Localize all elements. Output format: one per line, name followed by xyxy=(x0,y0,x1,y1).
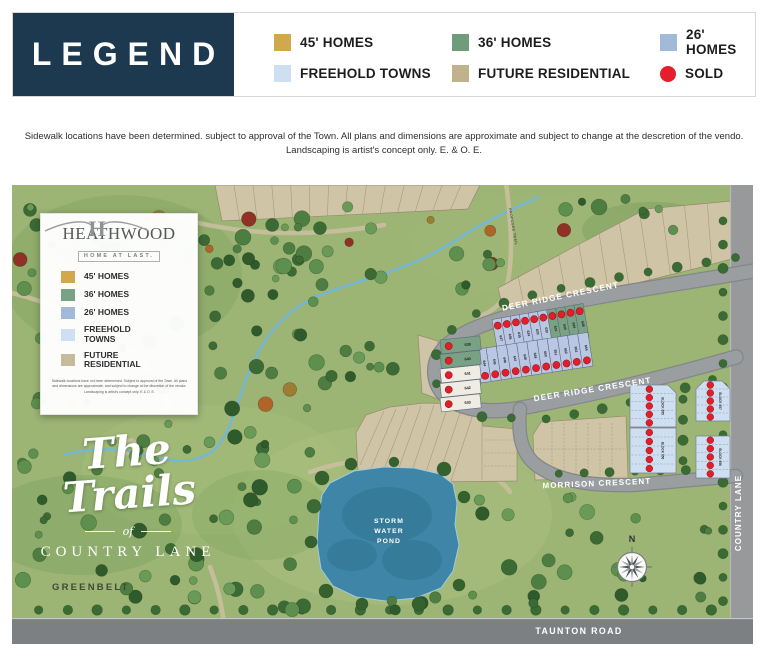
tree xyxy=(17,281,31,295)
tree xyxy=(15,572,30,587)
tree xyxy=(365,341,375,351)
tree xyxy=(34,606,43,615)
tree xyxy=(555,470,562,477)
lot-number: 649 xyxy=(533,352,538,358)
sold-dot xyxy=(707,470,714,477)
pond-label-line2: WATER xyxy=(374,528,404,535)
tree xyxy=(718,525,727,534)
card-legend-item: 26' HOMES xyxy=(61,307,189,319)
tree xyxy=(205,245,213,253)
sold-dot xyxy=(646,403,653,410)
tree xyxy=(209,515,217,523)
tree xyxy=(92,605,103,616)
tree xyxy=(649,606,658,615)
pond-shading xyxy=(327,539,377,571)
legend-item-label: 26' HOMES xyxy=(686,27,755,57)
tree xyxy=(483,250,492,259)
tree xyxy=(680,383,690,393)
color-swatch xyxy=(274,34,291,51)
lot-number: 648 xyxy=(523,354,528,360)
tree xyxy=(718,548,728,558)
tree xyxy=(209,342,217,350)
sold-dot xyxy=(707,437,714,444)
tree xyxy=(496,258,505,267)
block-label: BLOCK 655 xyxy=(660,397,664,415)
logo-swoosh-left xyxy=(45,222,91,231)
tree xyxy=(287,479,301,493)
tree xyxy=(365,223,376,234)
tree xyxy=(249,359,264,374)
tree xyxy=(303,404,311,412)
tree xyxy=(559,202,573,216)
card-legend-items: 45' HOMES36' HOMES26' HOMESFREEHOLD TOWN… xyxy=(49,271,189,370)
tree xyxy=(702,258,711,267)
tree xyxy=(62,483,73,494)
tree xyxy=(235,229,251,245)
color-swatch xyxy=(660,34,677,51)
site-plan-map: 6376366356346336326316306296286446456466… xyxy=(12,185,753,644)
tree xyxy=(719,288,727,296)
tree xyxy=(233,245,242,254)
tree xyxy=(668,225,678,235)
tree xyxy=(255,452,270,467)
tree xyxy=(35,531,42,538)
site-plan-page: LEGEND 45' HOMES36' HOMES26' HOMESFREEHO… xyxy=(0,0,768,654)
card-fine-print: Sidewalk locations have not been determi… xyxy=(49,379,189,395)
card-legend-item: FUTURE RESIDENTIAL xyxy=(61,351,189,371)
tree xyxy=(28,268,36,276)
legend-item-label: FUTURE RESIDENTIAL xyxy=(478,66,630,81)
sold-dot xyxy=(646,429,653,436)
tree xyxy=(719,573,727,581)
compass-north-label: N xyxy=(629,534,636,544)
tree xyxy=(92,464,103,475)
legend-bar: LEGEND 45' HOMES36' HOMES26' HOMESFREEHO… xyxy=(12,12,756,97)
tree xyxy=(631,513,641,523)
tree xyxy=(107,437,116,446)
tree xyxy=(233,278,243,288)
color-swatch xyxy=(61,271,75,283)
tree xyxy=(447,325,456,334)
tree xyxy=(542,554,555,567)
tree xyxy=(239,605,249,615)
sold-dot xyxy=(707,445,714,452)
color-swatch xyxy=(61,354,75,366)
tree xyxy=(243,493,258,508)
tree xyxy=(345,458,357,470)
tree xyxy=(566,529,574,537)
tree xyxy=(485,225,496,236)
tree xyxy=(580,504,595,519)
tree xyxy=(18,460,32,474)
sold-dot xyxy=(646,438,653,445)
tree xyxy=(678,435,688,445)
sold-dot xyxy=(646,456,653,463)
tree xyxy=(718,240,727,249)
tree xyxy=(13,253,27,267)
tree xyxy=(477,412,487,422)
tree xyxy=(719,217,727,225)
tree xyxy=(706,605,717,616)
lot-number: 652 xyxy=(563,348,568,354)
color-swatch xyxy=(452,65,469,82)
tree xyxy=(214,367,226,379)
tree xyxy=(615,588,628,601)
tree xyxy=(268,289,278,299)
sold-dot xyxy=(646,419,653,426)
tree xyxy=(340,345,352,357)
tree xyxy=(621,194,630,203)
tree xyxy=(462,281,471,290)
tree xyxy=(618,605,629,616)
tree xyxy=(453,579,465,591)
tree xyxy=(289,516,297,524)
legend-item-label: 45' HOMES xyxy=(300,35,373,50)
tree xyxy=(283,242,295,254)
tree xyxy=(386,362,399,375)
tree xyxy=(242,252,254,264)
tree xyxy=(681,465,690,474)
tree xyxy=(247,520,262,535)
town-block xyxy=(630,428,676,473)
tree xyxy=(679,395,687,403)
lot-number: 644 xyxy=(482,360,487,366)
tree xyxy=(281,224,288,231)
tree xyxy=(345,371,356,382)
tree xyxy=(284,558,297,571)
sold-dot xyxy=(646,394,653,401)
tree xyxy=(159,514,171,526)
legend-item-future-residential: FUTURE RESIDENTIAL xyxy=(452,65,660,82)
tree xyxy=(427,216,434,223)
tree xyxy=(731,253,739,261)
tree xyxy=(308,297,318,307)
tree xyxy=(591,199,607,215)
logo-monogram: H xyxy=(88,216,105,241)
lot-number: 653 xyxy=(573,346,578,352)
tree xyxy=(272,275,279,282)
tree xyxy=(326,370,338,382)
block-label: BLOCK 656 xyxy=(660,442,664,460)
tree xyxy=(154,468,164,478)
tree xyxy=(561,606,570,615)
tree xyxy=(267,605,278,616)
tree xyxy=(502,605,512,615)
legend-item-sold: SOLD xyxy=(660,66,755,82)
card-legend-label: FUTURE RESIDENTIAL xyxy=(84,351,156,371)
tree xyxy=(501,559,517,575)
tree xyxy=(251,326,262,337)
tree xyxy=(63,472,76,485)
tree xyxy=(219,510,234,525)
sold-dot xyxy=(707,406,714,413)
pond-shading xyxy=(382,540,442,580)
tree xyxy=(305,447,315,457)
legend-item-label: FREEHOLD TOWNS xyxy=(300,66,431,81)
tree xyxy=(242,212,257,227)
tree xyxy=(294,329,307,342)
tree xyxy=(557,565,572,580)
tree xyxy=(96,564,108,576)
tree xyxy=(356,598,368,610)
card-legend-label: 36' HOMES xyxy=(84,290,156,300)
tree xyxy=(326,605,336,615)
tree xyxy=(150,456,160,466)
lot-number: 651 xyxy=(553,349,558,355)
tree xyxy=(132,523,147,538)
lot-number: 654 xyxy=(584,345,589,351)
lot-number: 641 xyxy=(464,371,471,376)
tree xyxy=(672,262,682,272)
lot-number: 639 xyxy=(464,342,471,347)
tree xyxy=(266,218,279,231)
tree xyxy=(305,536,317,548)
card-legend-item: 45' HOMES xyxy=(61,271,189,283)
tree xyxy=(412,597,426,611)
tree xyxy=(225,401,240,416)
tree xyxy=(718,263,728,273)
pond-label-line1: STORM xyxy=(374,518,404,525)
tree xyxy=(183,445,191,453)
card-legend-label: 45' HOMES xyxy=(84,272,156,282)
logo-swoosh-right xyxy=(103,222,149,231)
tree xyxy=(313,222,326,235)
tree xyxy=(261,440,269,448)
tree xyxy=(285,602,299,616)
tree xyxy=(718,477,728,487)
tree xyxy=(63,605,73,615)
lot-number: 642 xyxy=(464,386,471,391)
lot-number: 640 xyxy=(464,357,471,362)
tree xyxy=(502,509,514,521)
tree xyxy=(238,483,246,491)
legend-item-36-homes: 36' HOMES xyxy=(452,34,660,51)
tree xyxy=(655,205,663,213)
legend-item-label: SOLD xyxy=(685,66,723,81)
sold-dot xyxy=(707,454,714,461)
sold-dot xyxy=(707,462,714,469)
color-swatch xyxy=(452,34,469,51)
tree xyxy=(476,507,490,521)
tree xyxy=(718,597,727,606)
tree xyxy=(718,311,727,320)
tree xyxy=(719,359,727,367)
card-legend-item: FREEHOLD TOWNS xyxy=(61,325,189,345)
tree xyxy=(557,223,571,237)
tree xyxy=(224,583,236,595)
tree xyxy=(472,309,480,317)
legend-item-26-homes: 26' HOMES xyxy=(660,27,755,57)
color-swatch xyxy=(61,329,75,341)
tree xyxy=(580,469,588,477)
tree xyxy=(458,491,470,503)
block-label: BLOCK 658 xyxy=(718,448,722,466)
tree xyxy=(228,430,243,445)
card-legend-label: FREEHOLD TOWNS xyxy=(84,325,156,345)
tree xyxy=(37,495,47,505)
sold-dot xyxy=(707,382,714,389)
tree xyxy=(307,499,321,513)
tree xyxy=(180,605,191,616)
legend-title: LEGEND xyxy=(13,13,234,96)
sold-dot xyxy=(646,411,653,418)
tree xyxy=(449,246,464,261)
sold-dot xyxy=(707,390,714,397)
tree xyxy=(315,471,329,485)
tree xyxy=(322,246,333,257)
tree xyxy=(270,237,278,245)
tree xyxy=(210,311,221,322)
tree xyxy=(258,397,273,412)
lot-number: 645 xyxy=(492,359,497,365)
tree xyxy=(529,598,539,608)
tree xyxy=(33,548,47,562)
tree xyxy=(296,256,304,264)
tree xyxy=(696,592,706,602)
tree xyxy=(570,410,579,419)
lot-number: 643 xyxy=(464,400,471,405)
map-legend-card: H HEATHWOOD HOME AT LAST. 45' HOMES36' H… xyxy=(40,213,198,415)
tree xyxy=(590,531,603,544)
tree xyxy=(563,493,573,503)
tree xyxy=(374,362,384,372)
legend-items: 45' HOMES36' HOMES26' HOMESFREEHOLD TOWN… xyxy=(234,13,755,96)
sold-dot-swatch xyxy=(660,66,676,82)
tree xyxy=(27,204,34,211)
tree xyxy=(205,286,215,296)
tree xyxy=(211,257,223,269)
tree xyxy=(705,527,712,534)
tree xyxy=(474,495,484,505)
town-block xyxy=(630,385,676,427)
tree xyxy=(210,606,219,615)
tree xyxy=(190,548,204,562)
card-legend-label: 26' HOMES xyxy=(84,308,156,318)
tree xyxy=(81,515,97,531)
color-swatch xyxy=(61,289,75,301)
tree xyxy=(597,404,607,414)
tree xyxy=(40,516,47,523)
sold-dot xyxy=(707,398,714,405)
tree xyxy=(353,352,364,363)
tree xyxy=(204,437,215,448)
greenbelt-label: GREENBELT xyxy=(52,582,130,593)
sold-dot xyxy=(646,447,653,454)
tree xyxy=(309,259,323,273)
tree xyxy=(473,606,482,615)
sold-dot xyxy=(646,465,653,472)
disclaimer-text: Sidewalk locations have been determined.… xyxy=(14,130,754,159)
brand-tagline: HOME AT LAST. xyxy=(78,251,160,262)
tree xyxy=(590,605,600,615)
tree xyxy=(542,415,550,423)
tree xyxy=(316,278,328,290)
tree xyxy=(694,572,706,584)
tree xyxy=(276,258,292,274)
tree xyxy=(189,577,197,585)
tree xyxy=(241,289,254,302)
tree xyxy=(679,457,687,465)
block-label: BLOCK 657 xyxy=(718,392,722,410)
tree xyxy=(389,457,399,467)
taunton-road xyxy=(12,618,753,644)
street-label-country-lane: COUNTRY LANE xyxy=(734,475,743,551)
tree xyxy=(507,414,515,422)
tree xyxy=(224,255,235,266)
tree xyxy=(122,606,131,615)
tree xyxy=(170,575,180,585)
lot-number: 650 xyxy=(543,351,548,357)
tree xyxy=(309,355,325,371)
tree xyxy=(165,543,176,554)
lot-number: 647 xyxy=(512,356,517,362)
tree xyxy=(139,570,151,582)
tree xyxy=(429,592,441,604)
tree xyxy=(639,207,647,215)
tree xyxy=(365,268,377,280)
legend-item-freehold-towns: FREEHOLD TOWNS xyxy=(274,65,452,82)
pond-label-line3: POND xyxy=(377,538,401,545)
tree xyxy=(678,415,687,424)
tree xyxy=(28,449,38,459)
tree xyxy=(188,591,201,604)
tree xyxy=(432,380,440,388)
tree xyxy=(605,468,614,477)
sold-dot xyxy=(707,414,714,421)
tree xyxy=(531,574,546,589)
lot-number: 646 xyxy=(502,357,507,363)
tree xyxy=(718,335,728,345)
tree xyxy=(437,462,451,476)
tree xyxy=(199,235,210,246)
tree xyxy=(483,258,496,271)
tree xyxy=(252,479,268,495)
color-swatch xyxy=(61,307,75,319)
color-swatch xyxy=(274,65,291,82)
tree xyxy=(151,605,161,615)
tree xyxy=(342,202,352,212)
sold-dot xyxy=(646,386,653,393)
tree xyxy=(244,426,256,438)
tree xyxy=(390,605,400,615)
tree xyxy=(677,605,687,615)
tree xyxy=(283,383,297,397)
card-legend-item: 36' HOMES xyxy=(61,289,189,301)
tree xyxy=(644,268,652,276)
tree xyxy=(578,198,586,206)
tree xyxy=(266,367,278,379)
tree xyxy=(134,446,143,455)
tree xyxy=(443,605,454,616)
tree xyxy=(319,584,333,598)
legend-item-label: 36' HOMES xyxy=(478,35,551,50)
street-label-taunton: TAUNTON ROAD xyxy=(535,626,622,636)
tree xyxy=(165,420,173,428)
tree xyxy=(250,584,264,598)
legend-item-45-homes: 45' HOMES xyxy=(274,34,452,51)
tree xyxy=(719,502,727,510)
tree xyxy=(468,591,476,599)
tree xyxy=(366,363,373,370)
tree xyxy=(294,223,302,231)
tree xyxy=(345,238,354,247)
